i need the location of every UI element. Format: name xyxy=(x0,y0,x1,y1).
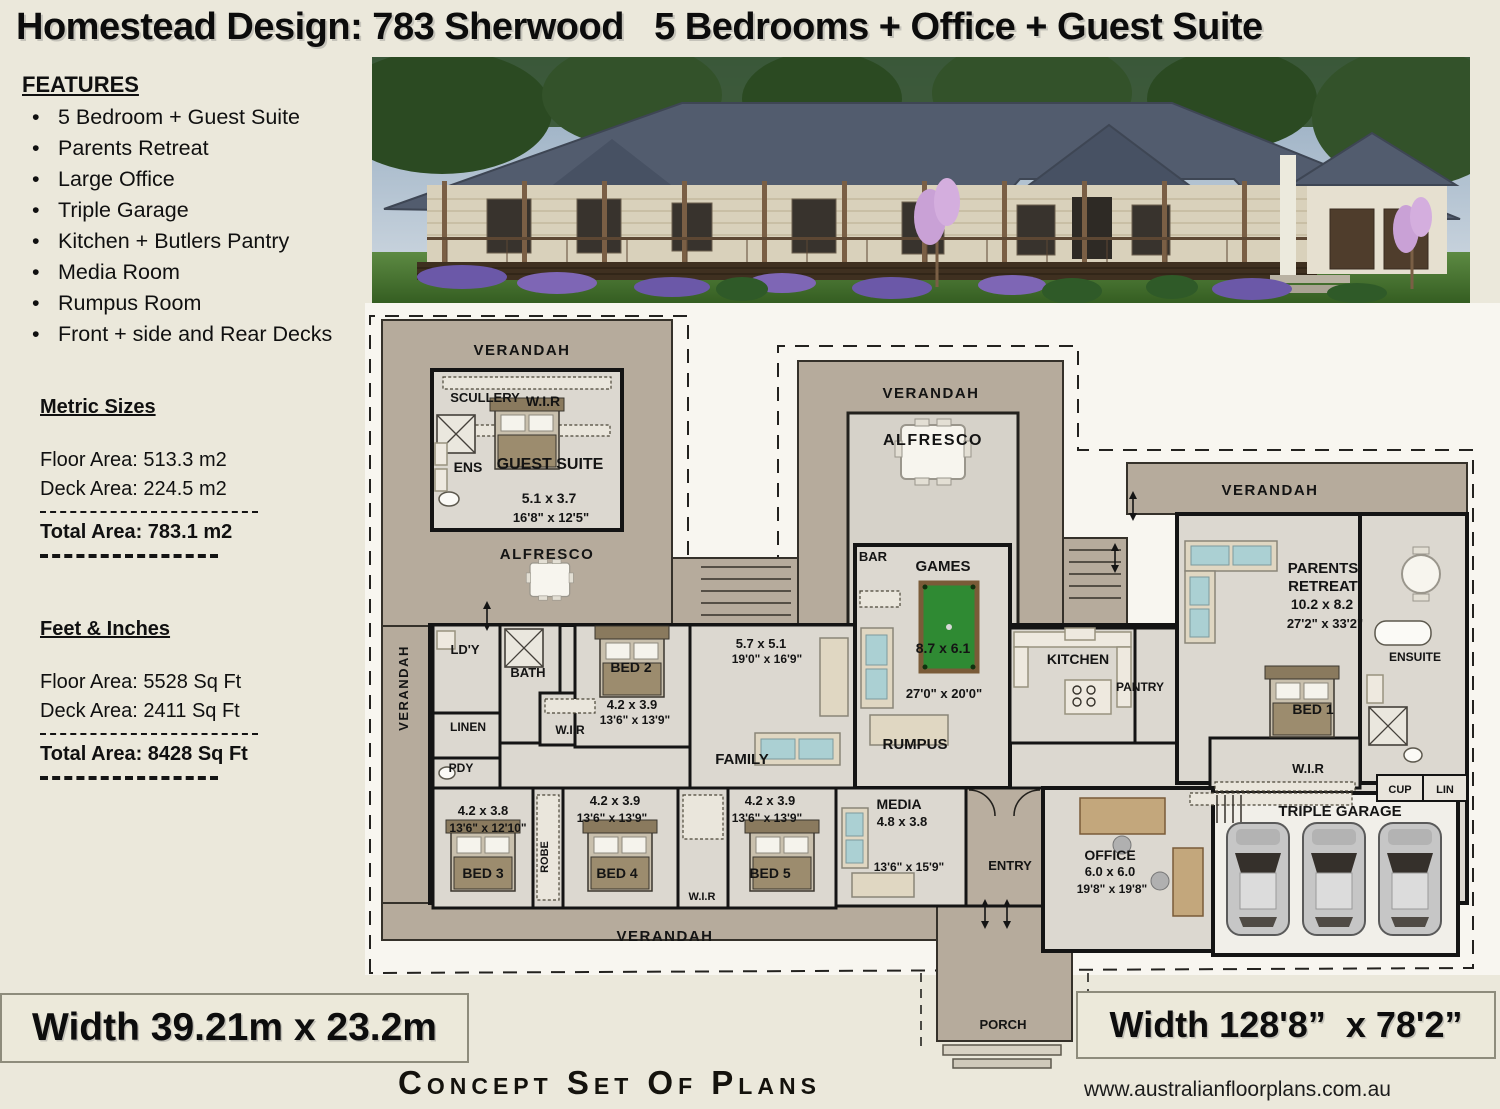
shower-icon xyxy=(505,629,543,667)
label-wir: W.I.R xyxy=(1292,761,1324,776)
label-media: MEDIA xyxy=(876,796,921,812)
label-bed2-imperial: 13'6" x 13'9" xyxy=(600,713,670,727)
features-heading: FEATURES xyxy=(22,72,365,98)
imperial-total-area: Total Area: 8428 Sq Ft xyxy=(40,743,365,766)
label-guest-metric: 5.1 x 3.7 xyxy=(522,490,577,506)
imperial-heading: Feet & Inches xyxy=(40,618,365,641)
label-bed4-imperial: 13'6" x 13'9" xyxy=(577,811,647,825)
divider-dashed xyxy=(40,511,258,513)
label-verandah: VERANDAH xyxy=(1221,482,1318,499)
label-linen: LINEN xyxy=(450,720,486,734)
feature-item: Front + side and Rear Decks xyxy=(0,319,365,350)
width-imperial-box: Width 128'8” x 78'2” xyxy=(1076,991,1496,1059)
bathtub-icon xyxy=(1375,621,1431,645)
label-games-imperial: 27'0" x 20'0" xyxy=(906,686,982,701)
label-bed4: BED 4 xyxy=(596,865,637,881)
label-bar: BAR xyxy=(859,549,888,564)
label-bed3: BED 3 xyxy=(462,865,503,881)
label-parents-imperial: 27'2" x 33'2" xyxy=(1287,616,1363,631)
label-lin: LIN xyxy=(1436,784,1454,796)
label-alfresco: ALFRESCO xyxy=(883,432,983,449)
label-kitchen: KITCHEN xyxy=(1047,651,1109,667)
features-list: 5 Bedroom + Guest Suite Parents Retreat … xyxy=(0,102,365,350)
label-guest-imperial: 16'8" x 12'5" xyxy=(513,510,589,525)
label-bed1: BED 1 xyxy=(1292,701,1333,717)
feature-item: Parents Retreat xyxy=(0,133,365,164)
label-bed5: BED 5 xyxy=(749,865,790,881)
label-bed3-metric: 4.2 x 3.8 xyxy=(458,803,509,818)
feature-item: Large Office xyxy=(0,164,365,195)
front-door xyxy=(1072,197,1112,259)
label-scullery: SCULLERY xyxy=(450,390,520,405)
robe-strip xyxy=(683,795,723,839)
concept-set-of-plans-text: Concept Set Of Plans xyxy=(398,1064,821,1102)
vanity-icon xyxy=(435,443,447,465)
house-render-art xyxy=(372,57,1470,305)
sidebar: FEATURES 5 Bedroom + Guest Suite Parents… xyxy=(0,62,365,788)
label-office: OFFICE xyxy=(1084,847,1135,863)
feature-item: 5 Bedroom + Guest Suite xyxy=(0,102,365,133)
metric-heading: Metric Sizes xyxy=(40,396,365,419)
house-render-photo xyxy=(372,57,1470,305)
toilet-icon xyxy=(439,492,459,506)
shower-icon xyxy=(1369,707,1407,745)
label-verandah-vertical: VERANDAH xyxy=(396,645,411,731)
porch-step xyxy=(953,1059,1051,1068)
label-verandah: VERANDAH xyxy=(616,928,713,945)
label-bed5-metric: 4.2 x 3.9 xyxy=(745,793,796,808)
label-ensuite: ENSUITE xyxy=(1389,650,1441,664)
cooktop-icon xyxy=(1065,628,1095,640)
metric-floor-area: Floor Area: 513.3 m2 xyxy=(40,449,365,472)
label-media-imperial: 13'6" x 15'9" xyxy=(874,860,944,874)
label-wir: W.I.R xyxy=(689,891,716,903)
robe-strip xyxy=(545,699,595,713)
outdoor-table-icon xyxy=(526,559,573,600)
room-wir-parents xyxy=(1210,738,1360,788)
label-family: FAMILY xyxy=(715,751,769,768)
label-parents-metric: 10.2 x 8.2 xyxy=(1291,596,1353,612)
imperial-floor-area: Floor Area: 5528 Sq Ft xyxy=(40,671,365,694)
label-office-imperial: 19'8" x 19'8" xyxy=(1077,882,1147,896)
imperial-deck-area: Deck Area: 2411 Sq Ft xyxy=(40,700,365,723)
robe-strip xyxy=(1215,782,1355,791)
deck-connector-right xyxy=(1063,538,1127,628)
floor-plan-drawing: VERANDAH SCULLERY W.I.R ENS GUEST SUITE … xyxy=(365,303,1500,1078)
label-alfresco: ALFRESCO xyxy=(500,546,595,563)
feature-item: Rumpus Room xyxy=(0,288,365,319)
label-games-metric: 8.7 x 6.1 xyxy=(916,640,971,656)
feature-item: Media Room xyxy=(0,257,365,288)
room-entry xyxy=(966,788,1043,906)
label-guest-suite: GUEST SUITE xyxy=(497,456,604,473)
feature-item: Triple Garage xyxy=(0,195,365,226)
label-bed3-imperial: 13'6" x 12'10" xyxy=(449,821,526,835)
label-triple-garage: TRIPLE GARAGE xyxy=(1278,803,1401,820)
divider-dashed-bold xyxy=(40,554,218,558)
label-robe-vertical: ROBE xyxy=(539,841,551,873)
label-verandah: VERANDAH xyxy=(882,385,979,402)
label-bed2: BED 2 xyxy=(610,659,651,675)
label-media-metric: 4.8 x 3.8 xyxy=(877,814,928,829)
toilet-icon xyxy=(1404,748,1422,762)
divider-dashed-bold xyxy=(40,776,218,780)
label-family-imperial: 19'0" x 16'9" xyxy=(732,652,802,666)
car-icon xyxy=(1379,823,1441,935)
label-rumpus: RUMPUS xyxy=(882,736,947,753)
label-ens: ENS xyxy=(454,459,483,475)
label-wir: W.I.R xyxy=(526,393,560,409)
floor-plan: VERANDAH SCULLERY W.I.R ENS GUEST SUITE … xyxy=(365,303,1500,1078)
label-family-metric: 5.7 x 5.1 xyxy=(736,636,787,651)
label-laundry: LD'Y xyxy=(450,642,479,657)
car-icon xyxy=(1303,823,1365,935)
label-bed5-imperial: 13'6" x 13'9" xyxy=(732,811,802,825)
label-verandah: VERANDAH xyxy=(473,342,570,359)
robe-strip xyxy=(443,377,611,389)
label-bath: BATH xyxy=(510,665,545,680)
label-parents: PARENTS xyxy=(1288,560,1359,577)
label-powder: PDY xyxy=(449,761,474,775)
pool-table-icon xyxy=(921,583,977,671)
label-bed2-metric: 4.2 x 3.9 xyxy=(607,697,658,712)
outdoor-table-icon xyxy=(895,419,971,485)
metric-deck-area: Deck Area: 224.5 m2 xyxy=(40,478,365,501)
flyer-page: Homestead Design: 783 Sherwood 5 Bedroom… xyxy=(0,0,1500,1109)
label-retreat: RETREAT xyxy=(1288,578,1358,595)
label-porch: PORCH xyxy=(980,1017,1027,1032)
porch-step xyxy=(943,1045,1061,1055)
label-cup: CUP xyxy=(1388,784,1411,796)
bar-counter xyxy=(860,591,900,607)
vanity-icon xyxy=(1367,675,1383,703)
vanity-icon xyxy=(435,469,447,491)
label-entry: ENTRY xyxy=(988,858,1032,873)
metric-total-area: Total Area: 783.1 m2 xyxy=(40,521,365,544)
label-bed4-metric: 4.2 x 3.9 xyxy=(590,793,641,808)
divider-dashed xyxy=(40,733,258,735)
label-games: GAMES xyxy=(915,558,970,575)
label-office-metric: 6.0 x 6.0 xyxy=(1085,864,1136,879)
label-pantry: PANTRY xyxy=(1116,680,1164,694)
width-metric-box: Width 39.21m x 23.2m xyxy=(0,993,469,1063)
page-title: Homestead Design: 783 Sherwood 5 Bedroom… xyxy=(16,6,1263,49)
deck-connector-left xyxy=(672,558,798,626)
feature-item: Kitchen + Butlers Pantry xyxy=(0,226,365,257)
label-wir: W.I.R xyxy=(555,723,585,737)
website-url[interactable]: www.australianfloorplans.com.au xyxy=(1065,1078,1410,1102)
car-icon xyxy=(1227,823,1289,935)
